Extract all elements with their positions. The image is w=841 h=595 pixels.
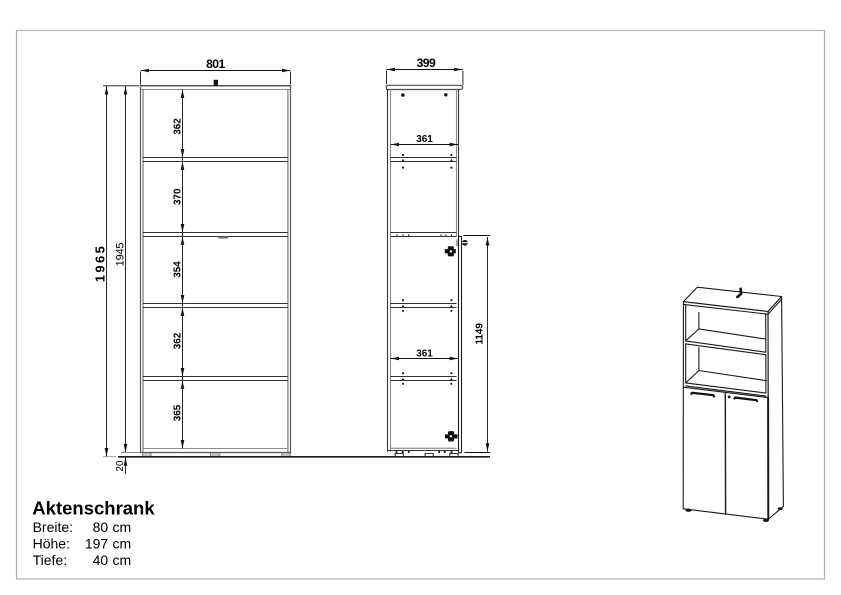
svg-text:354: 354 bbox=[172, 261, 183, 278]
svg-text:362: 362 bbox=[172, 332, 183, 349]
svg-text:361: 361 bbox=[416, 134, 433, 145]
svg-text:cm: cm bbox=[113, 536, 132, 552]
svg-text:1965: 1965 bbox=[93, 244, 108, 283]
svg-text:Breite:: Breite: bbox=[33, 519, 73, 535]
svg-text:197: 197 bbox=[85, 536, 109, 552]
svg-text:80: 80 bbox=[93, 519, 109, 535]
svg-text:1945: 1945 bbox=[114, 243, 126, 267]
svg-text:365: 365 bbox=[172, 404, 183, 421]
svg-text:cm: cm bbox=[113, 552, 132, 568]
svg-text:399: 399 bbox=[417, 56, 436, 70]
svg-text:370: 370 bbox=[172, 188, 183, 205]
svg-text:1149: 1149 bbox=[475, 323, 486, 345]
svg-text:362: 362 bbox=[172, 118, 183, 135]
svg-text:Aktenschrank: Aktenschrank bbox=[32, 498, 155, 519]
svg-text:Tiefe:: Tiefe: bbox=[33, 552, 68, 568]
svg-text:801: 801 bbox=[206, 57, 225, 71]
svg-text:Höhe:: Höhe: bbox=[33, 536, 70, 552]
svg-text:20: 20 bbox=[115, 460, 126, 472]
svg-text:40: 40 bbox=[93, 552, 109, 568]
svg-text:cm: cm bbox=[113, 519, 132, 535]
svg-text:361: 361 bbox=[416, 349, 433, 360]
